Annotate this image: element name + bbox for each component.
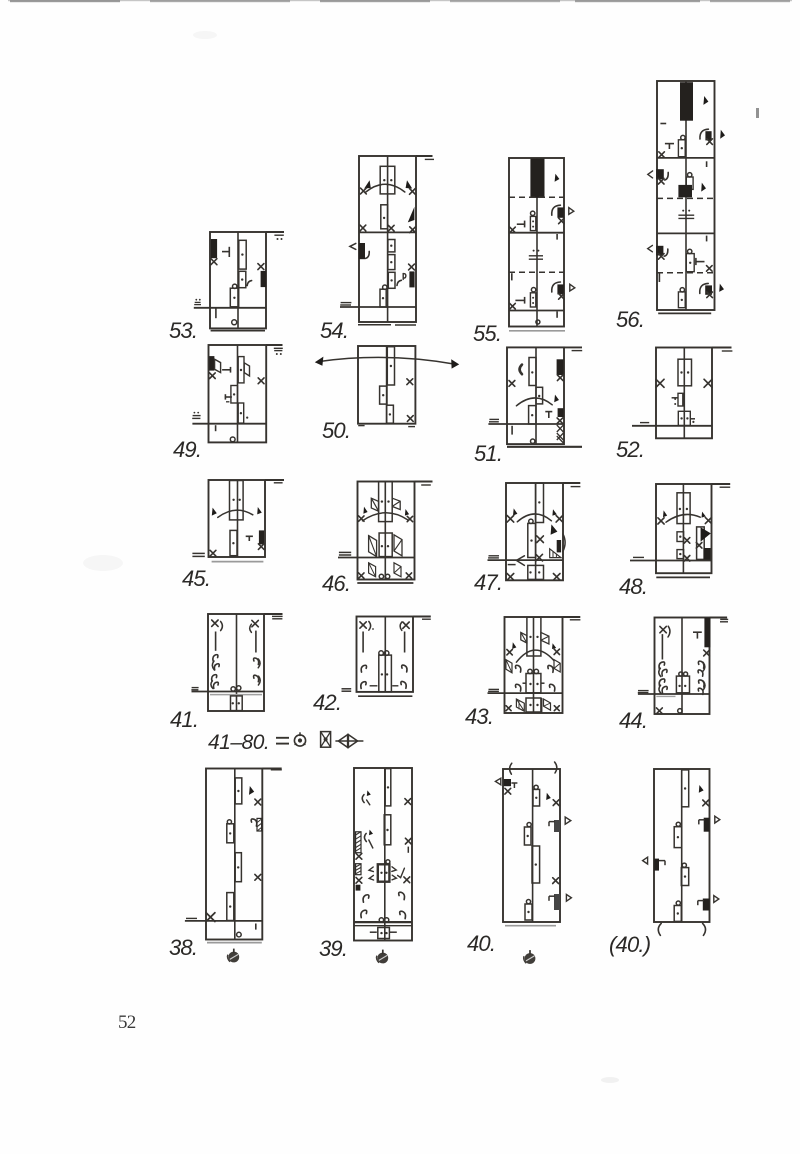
svg-text:42.: 42.	[313, 690, 341, 715]
svg-text:52: 52	[118, 1012, 136, 1033]
svg-text:41.: 41.	[170, 707, 198, 732]
svg-text:51.: 51.	[474, 441, 502, 466]
svg-text:48.: 48.	[619, 574, 647, 599]
svg-text:45.: 45.	[182, 566, 210, 591]
svg-text:53.: 53.	[169, 318, 197, 343]
svg-text:56.: 56.	[616, 307, 644, 332]
svg-text:49.: 49.	[173, 437, 201, 462]
svg-text:41–80.: 41–80.	[208, 731, 269, 754]
svg-text:46.: 46.	[322, 571, 350, 596]
svg-text:55.: 55.	[473, 321, 501, 346]
svg-text:40.: 40.	[467, 931, 495, 956]
svg-text:44.: 44.	[619, 708, 647, 733]
svg-text:43.: 43.	[465, 704, 493, 729]
svg-text:38.: 38.	[169, 935, 197, 960]
svg-text:47.: 47.	[474, 570, 502, 595]
svg-text:52.: 52.	[616, 437, 644, 462]
svg-text:50.: 50.	[322, 418, 350, 443]
svg-text:39.: 39.	[319, 936, 347, 961]
svg-text:(40.): (40.)	[609, 932, 651, 957]
svg-text:54.: 54.	[320, 318, 348, 343]
